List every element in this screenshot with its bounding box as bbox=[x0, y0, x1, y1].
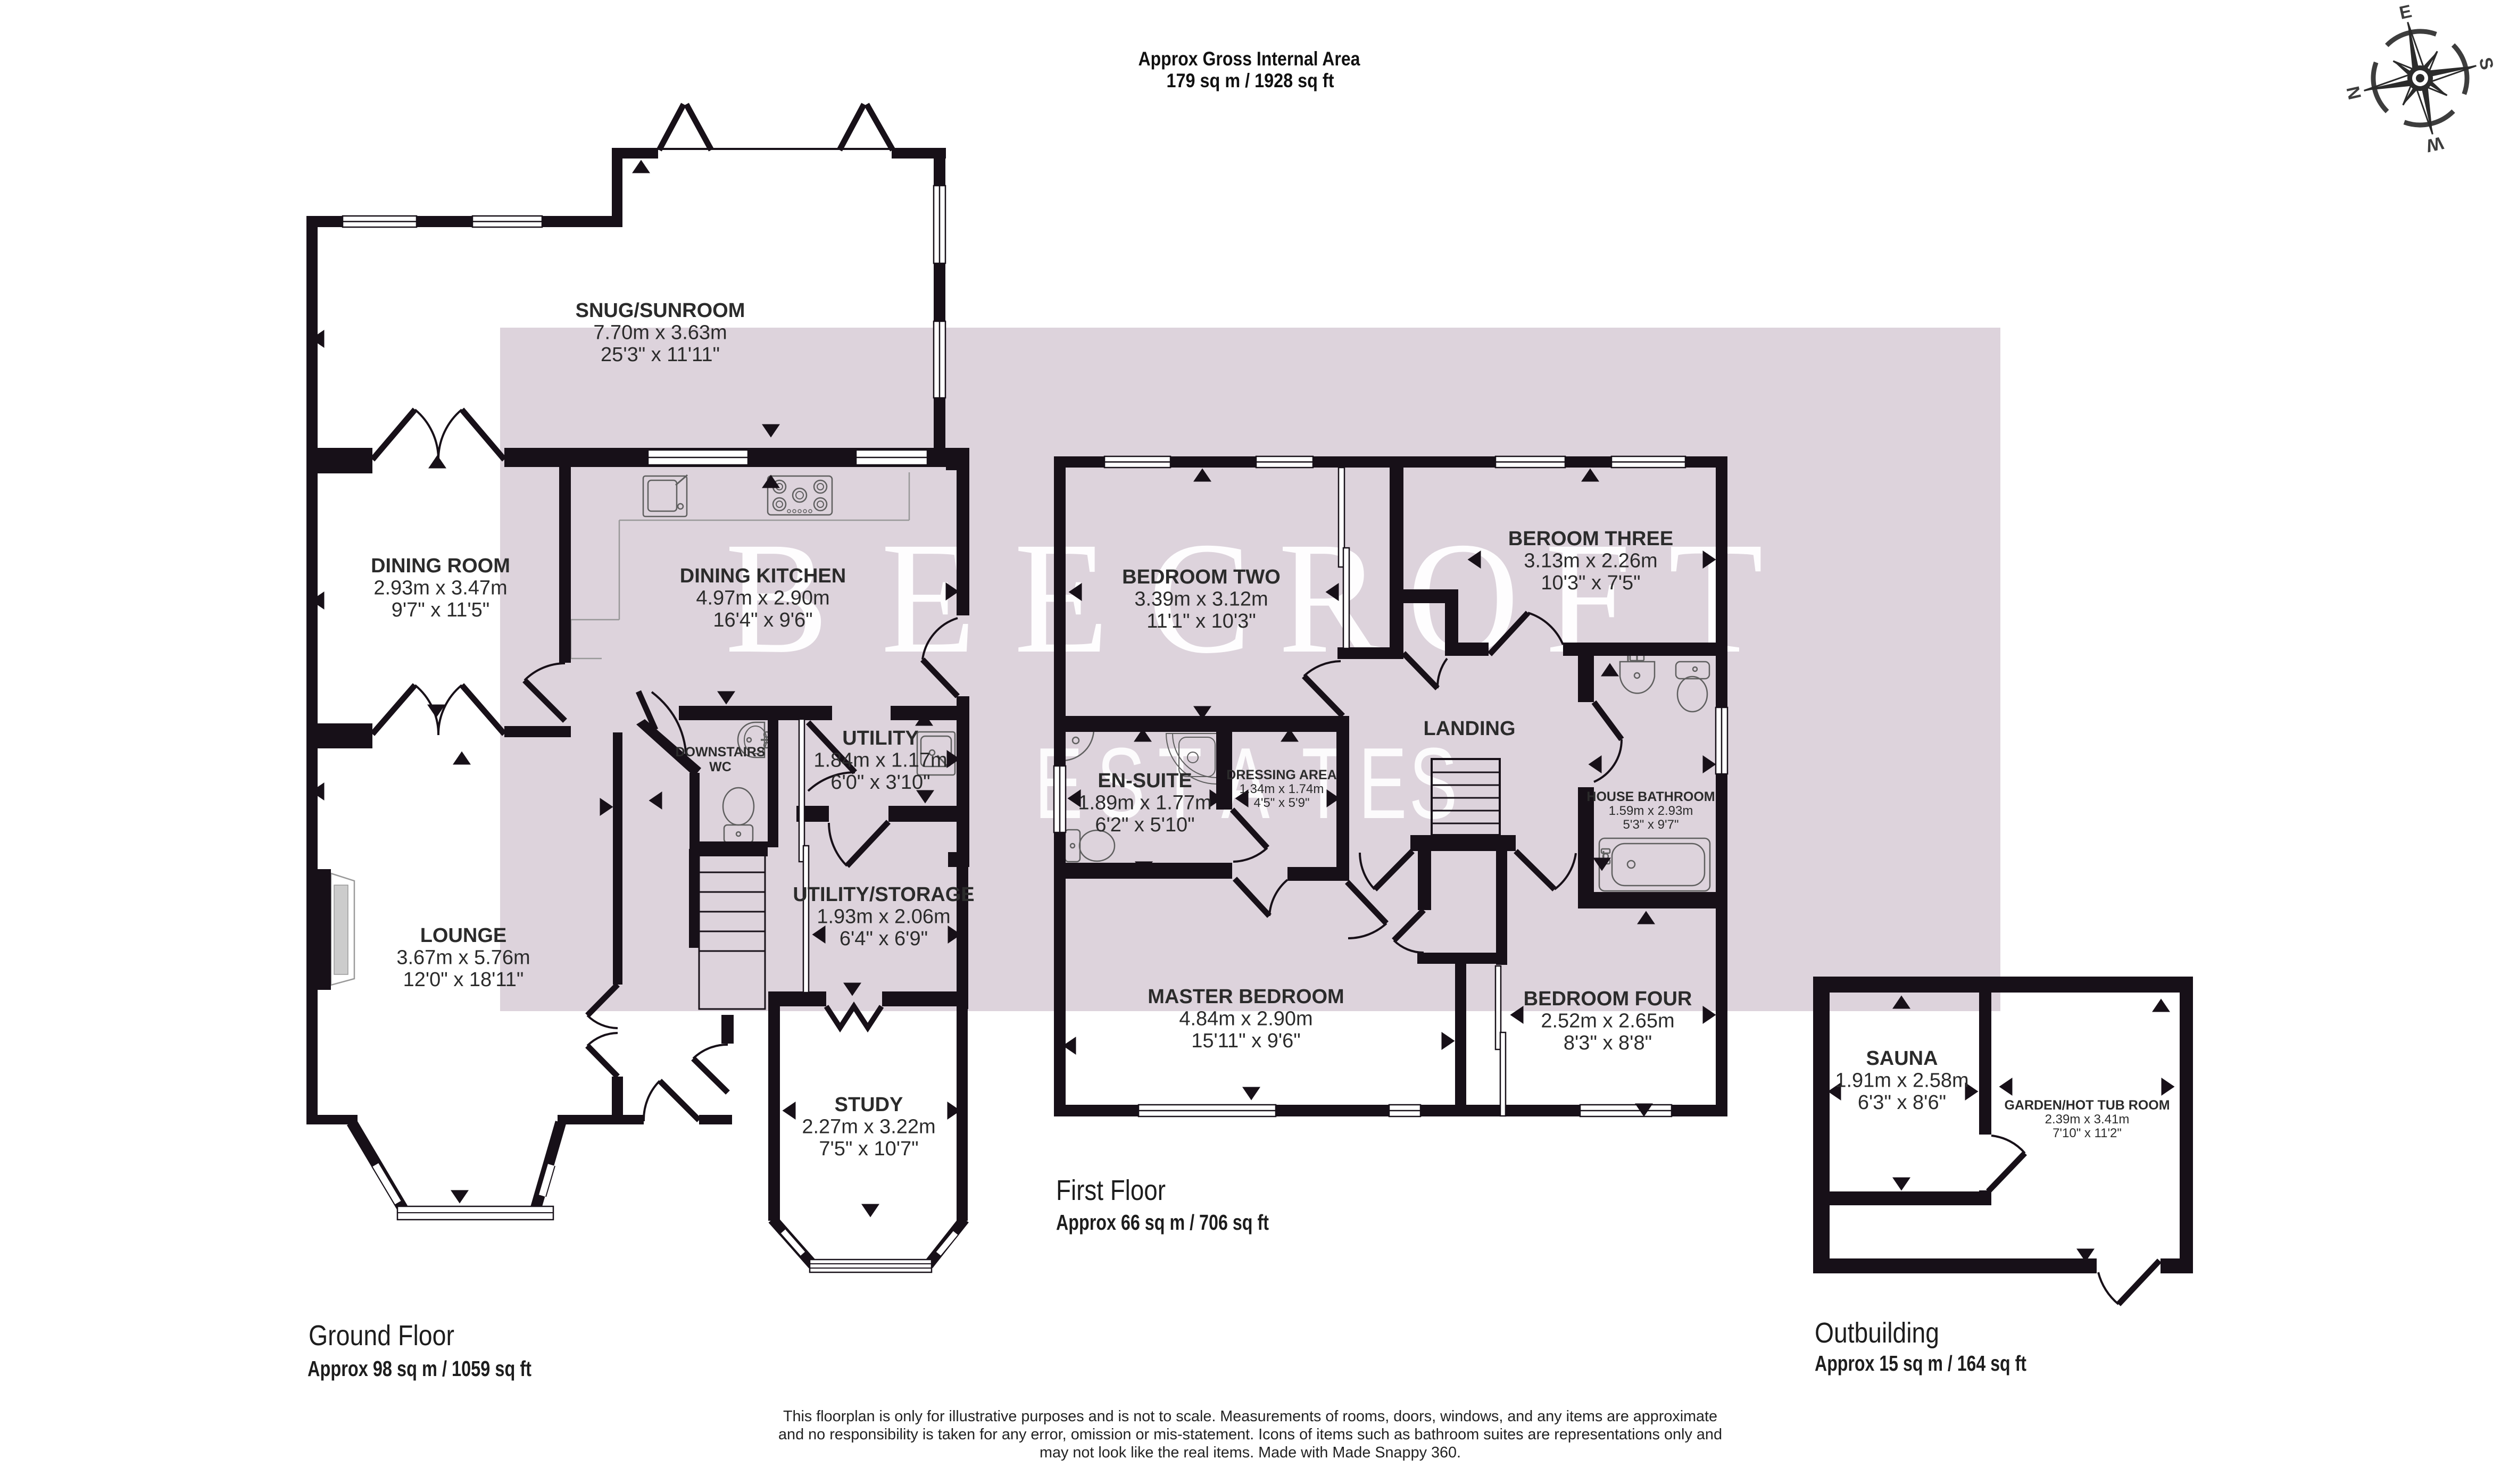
svg-text:Approx 15 sq m / 164 sq ft: Approx 15 sq m / 164 sq ft bbox=[1815, 1351, 2026, 1375]
svg-text:EN-SUITE: EN-SUITE bbox=[1098, 770, 1192, 792]
svg-text:1.34m x 1.74m: 1.34m x 1.74m bbox=[1240, 782, 1324, 796]
svg-text:DINING KITCHEN: DINING KITCHEN bbox=[680, 565, 846, 587]
svg-text:15'11" x 9'6": 15'11" x 9'6" bbox=[1191, 1030, 1301, 1052]
svg-text:DRESSING AREA: DRESSING AREA bbox=[1226, 768, 1336, 782]
svg-text:2.39m x 3.41m: 2.39m x 3.41m bbox=[2045, 1112, 2130, 1127]
svg-text:1.84m x 1.17m: 1.84m x 1.17m bbox=[813, 749, 947, 772]
svg-text:6'0" x 3'10": 6'0" x 3'10" bbox=[830, 771, 930, 794]
svg-text:This floorplan is only for ill: This floorplan is only for illustrative … bbox=[783, 1408, 1717, 1425]
svg-text:7'10" x 11'2": 7'10" x 11'2" bbox=[2053, 1126, 2122, 1140]
svg-text:GARDEN/HOT TUB ROOM: GARDEN/HOT TUB ROOM bbox=[2004, 1098, 2170, 1113]
svg-text:SAUNA: SAUNA bbox=[1866, 1047, 1938, 1070]
svg-text:7.70m x 3.63m: 7.70m x 3.63m bbox=[593, 322, 727, 344]
svg-text:MASTER BEDROOM: MASTER BEDROOM bbox=[1148, 986, 1344, 1008]
svg-text:10'3" x 7'5": 10'3" x 7'5" bbox=[1541, 572, 1640, 594]
svg-text:3.39m x 3.12m: 3.39m x 3.12m bbox=[1134, 588, 1268, 611]
svg-text:6'2" x 5'10": 6'2" x 5'10" bbox=[1095, 814, 1194, 836]
svg-text:4.97m x 2.90m: 4.97m x 2.90m bbox=[696, 587, 829, 610]
svg-text:may not look like the real ite: may not look like the real items. Made w… bbox=[1040, 1444, 1461, 1461]
svg-text:4.84m x 2.90m: 4.84m x 2.90m bbox=[1179, 1008, 1312, 1030]
svg-text:2.27m x 3.22m: 2.27m x 3.22m bbox=[802, 1116, 935, 1138]
svg-text:SNUG/SUNROOM: SNUG/SUNROOM bbox=[576, 299, 745, 322]
svg-text:179 sq m / 1928 sq ft: 179 sq m / 1928 sq ft bbox=[1167, 70, 1334, 91]
svg-text:E: E bbox=[1358, 727, 1407, 840]
svg-text:LOUNGE: LOUNGE bbox=[420, 924, 507, 947]
svg-text:Approx 66 sq m / 706 sq ft: Approx 66 sq m / 706 sq ft bbox=[1056, 1210, 1269, 1235]
svg-text:8'3" x 8'8": 8'3" x 8'8" bbox=[1564, 1032, 1652, 1054]
svg-text:BEDROOM FOUR: BEDROOM FOUR bbox=[1524, 988, 1692, 1010]
svg-text:STUDY: STUDY bbox=[835, 1094, 903, 1116]
svg-text:11'1" x 10'3": 11'1" x 10'3" bbox=[1146, 610, 1256, 632]
svg-text:16'4" x 9'6": 16'4" x 9'6" bbox=[713, 609, 812, 631]
svg-text:DOWNSTAIRS: DOWNSTAIRS bbox=[676, 745, 766, 760]
svg-text:2.93m x 3.47m: 2.93m x 3.47m bbox=[373, 577, 507, 599]
svg-text:LANDING: LANDING bbox=[1423, 718, 1515, 740]
svg-text:First Floor: First Floor bbox=[1056, 1174, 1166, 1206]
svg-text:5'3" x 9'7": 5'3" x 9'7" bbox=[1623, 818, 1679, 832]
svg-text:Ground Floor: Ground Floor bbox=[309, 1320, 454, 1352]
svg-text:Outbuilding: Outbuilding bbox=[1815, 1317, 1939, 1349]
svg-text:3.67m x 5.76m: 3.67m x 5.76m bbox=[396, 947, 530, 969]
svg-text:2.52m x 2.65m: 2.52m x 2.65m bbox=[1541, 1010, 1674, 1032]
svg-text:Approx 98 sq m / 1059 sq ft: Approx 98 sq m / 1059 sq ft bbox=[308, 1356, 531, 1381]
svg-text:6'3" x 8'6": 6'3" x 8'6" bbox=[1858, 1091, 1946, 1114]
svg-text:BEROOM THREE: BEROOM THREE bbox=[1508, 528, 1673, 550]
svg-text:1.59m x 2.93m: 1.59m x 2.93m bbox=[1609, 804, 1693, 818]
svg-text:1.93m x 2.06m: 1.93m x 2.06m bbox=[817, 906, 950, 928]
svg-text:HOUSE BATHROOM: HOUSE BATHROOM bbox=[1586, 789, 1715, 804]
svg-text:BEDROOM TWO: BEDROOM TWO bbox=[1122, 566, 1281, 588]
svg-text:6'4" x 6'9": 6'4" x 6'9" bbox=[840, 928, 928, 950]
svg-text:4'5" x 5'9": 4'5" x 5'9" bbox=[1254, 796, 1310, 810]
svg-text:and no responsibility is taken: and no responsibility is taken for any e… bbox=[778, 1426, 1722, 1443]
svg-text:UTILITY/STORAGE: UTILITY/STORAGE bbox=[793, 883, 974, 906]
svg-text:25'3" x 11'11": 25'3" x 11'11" bbox=[601, 344, 720, 366]
svg-text:7'5" x 10'7": 7'5" x 10'7" bbox=[819, 1138, 918, 1160]
svg-text:UTILITY: UTILITY bbox=[842, 727, 919, 749]
svg-text:R: R bbox=[1278, 510, 1383, 687]
svg-text:1.91m x 2.58m: 1.91m x 2.58m bbox=[1835, 1070, 1968, 1092]
svg-text:WC: WC bbox=[709, 760, 732, 774]
svg-text:3.13m x 2.26m: 3.13m x 2.26m bbox=[1524, 550, 1657, 572]
svg-text:Approx Gross Internal Area: Approx Gross Internal Area bbox=[1139, 48, 1360, 70]
svg-text:DINING ROOM: DINING ROOM bbox=[371, 555, 510, 577]
svg-text:9'7" x 11'5": 9'7" x 11'5" bbox=[392, 599, 489, 621]
svg-text:1.89m x 1.77m: 1.89m x 1.77m bbox=[1078, 792, 1211, 814]
svg-text:12'0" x 18'11": 12'0" x 18'11" bbox=[403, 969, 524, 991]
